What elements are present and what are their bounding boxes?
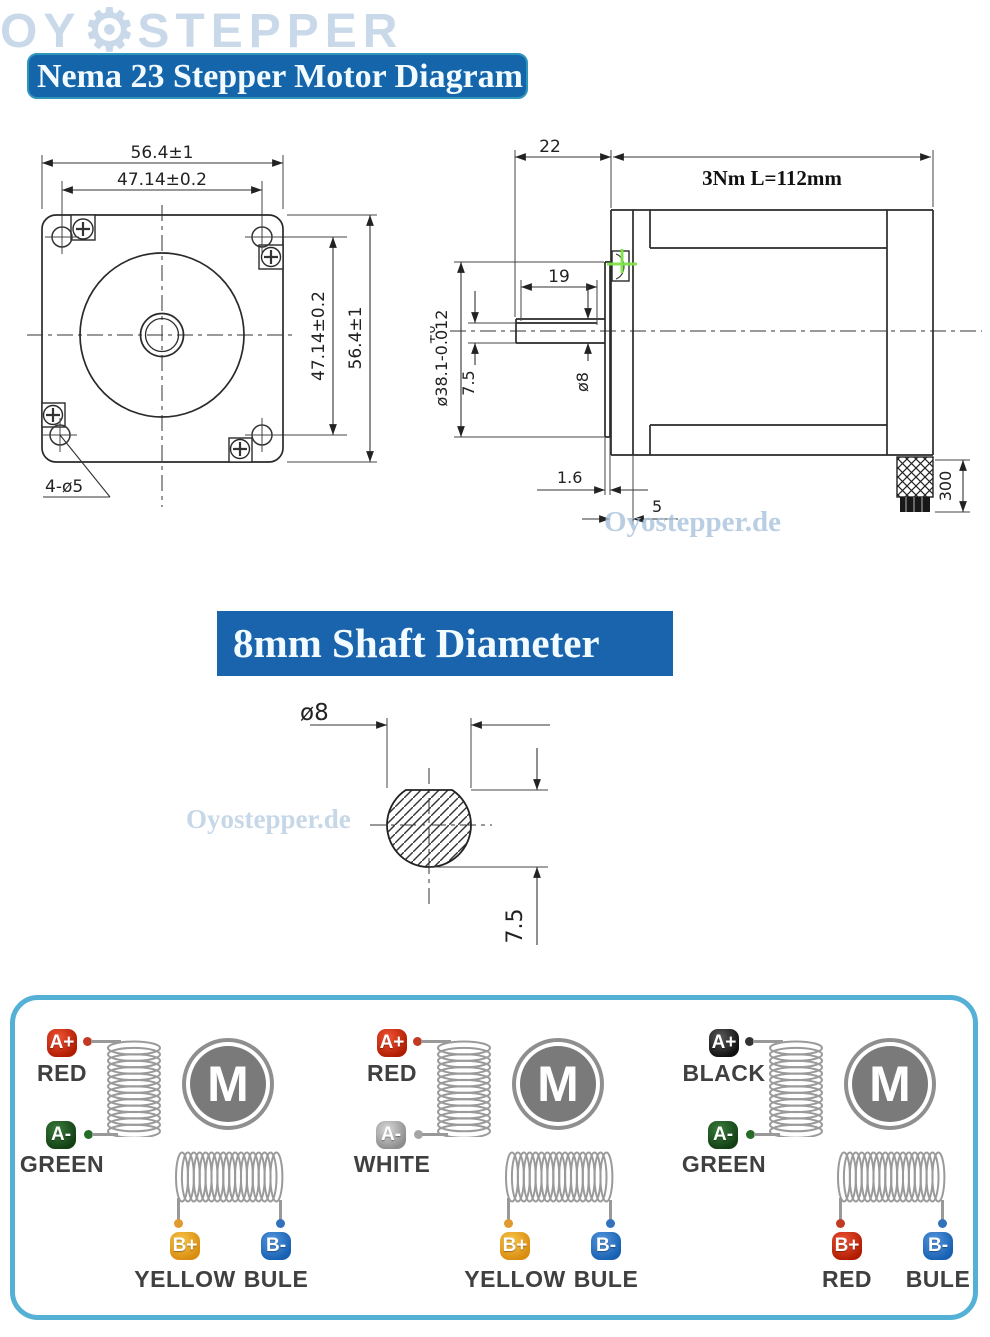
motor-letter: M	[537, 1059, 579, 1109]
wire-color-label: BULE	[883, 1266, 990, 1293]
watermark-brand-right: STEPPER	[137, 4, 403, 59]
mounting-flange	[611, 210, 633, 455]
wire-color-label: BULE	[221, 1266, 331, 1293]
motor-letter: M	[207, 1059, 249, 1109]
phase-a-coil-icon	[105, 1039, 163, 1137]
wire-color-label: RED	[7, 1060, 117, 1087]
terminal-a-plus-badge: A+	[377, 1029, 407, 1057]
dim-plate-thickness: 1.6	[557, 468, 582, 487]
dim-outer-width: 56.4±1	[131, 143, 194, 163]
terminal-a-minus-badge: A-	[46, 1121, 76, 1149]
phase-a-coil-icon	[435, 1039, 493, 1137]
gear-icon: ⚙	[83, 2, 135, 60]
watermark-brand-left: OY	[0, 4, 81, 59]
wire-color-label: GREEN	[669, 1151, 779, 1178]
wiring-unit-2: A+ RED A- WHITE M B+ YELLOW B- BULE	[340, 995, 660, 1315]
watermark-site: Oyostepper.de	[604, 506, 781, 539]
dim-hole-spacing-v: 47.14±0.2	[309, 291, 329, 381]
wire-color-label: BLACK	[669, 1060, 779, 1087]
wire-color-label: BULE	[551, 1266, 661, 1293]
wiring-unit-3: A+ BLACK A- GREEN M B+ RED B- BULE	[672, 995, 990, 1315]
terminal-a-minus-badge: A-	[708, 1121, 738, 1149]
dim-pilot-tolerance: +0	[430, 325, 439, 344]
front-view-drawing: 56.4±1 47.14±0.2 47.14±0.2	[25, 135, 445, 535]
terminal-b-plus-badge: B+	[832, 1232, 862, 1260]
wire-node	[606, 1219, 615, 1228]
wire-node	[276, 1219, 285, 1228]
terminal-a-plus-badge: A+	[47, 1029, 77, 1057]
body-length-label: 3Nm L=112mm	[702, 166, 842, 190]
dim-cable-length: 300	[936, 471, 955, 502]
shaft-section-outline	[387, 790, 471, 867]
side-view-drawing: 22 3Nm L=112mm 19 ø38.1-0.012 +0 7.5 ø8 …	[430, 135, 990, 565]
wire-color-label: RED	[337, 1060, 447, 1087]
terminal-b-plus-badge: B+	[500, 1232, 530, 1260]
dim-pilot-diameter: ø38.1-0.012	[432, 310, 451, 407]
wiring-diagram-panel: A+ RED A- GREEN M B+ YELLOW B- BULE A+ R…	[10, 995, 978, 1320]
motor-body-outline	[611, 210, 933, 455]
dim-section-flat: 7.5	[503, 909, 528, 944]
wire-node	[938, 1219, 947, 1228]
wire-node	[174, 1219, 183, 1228]
motor-letter: M	[869, 1059, 911, 1109]
cable-braid	[897, 457, 933, 512]
motor-symbol: M	[844, 1038, 936, 1130]
terminal-a-plus-badge: A+	[709, 1029, 739, 1057]
dim-front-length: 22	[539, 137, 561, 157]
phase-b-coil-icon	[836, 1149, 948, 1205]
dim-hole-count: 4-ø5	[45, 477, 83, 497]
watermark-brand: OY ⚙ STEPPER	[0, 0, 990, 62]
terminal-b-minus-badge: B-	[923, 1232, 953, 1260]
terminal-b-minus-badge: B-	[261, 1232, 291, 1260]
phase-b-coil-icon	[504, 1149, 616, 1205]
motor-symbol: M	[512, 1038, 604, 1130]
wire-color-label: WHITE	[337, 1151, 447, 1178]
dim-flat-length: 19	[548, 267, 570, 287]
terminal-a-minus-badge: A-	[376, 1121, 406, 1149]
wire-node	[504, 1219, 513, 1228]
phase-b-coil-icon	[174, 1149, 286, 1205]
terminal-b-minus-badge: B-	[591, 1232, 621, 1260]
product-diagram-page: Nema 23 Stepper Motor Diagram 56.4±1 47.…	[0, 0, 990, 1337]
dim-shaft-diameter: ø8	[573, 372, 592, 392]
dim-outer-height: 56.4±1	[346, 307, 366, 370]
pilot-boss-plate	[605, 262, 610, 437]
dim-hole-spacing-h: 47.14±0.2	[117, 170, 207, 190]
wire-color-label: GREEN	[7, 1151, 117, 1178]
dim-section-diameter: ø8	[300, 700, 329, 726]
wiring-unit-1: A+ RED A- GREEN M B+ YELLOW B- BULE	[10, 995, 330, 1315]
shaft-section-title: 8mm Shaft Diameter	[217, 611, 673, 676]
dim-flat-height: 7.5	[459, 370, 478, 395]
phase-a-coil-icon	[767, 1039, 825, 1137]
motor-symbol: M	[182, 1038, 274, 1130]
wire-node	[836, 1219, 845, 1228]
terminal-b-plus-badge: B+	[170, 1232, 200, 1260]
shaft-cross-section-drawing: ø8 7.5	[170, 690, 630, 980]
